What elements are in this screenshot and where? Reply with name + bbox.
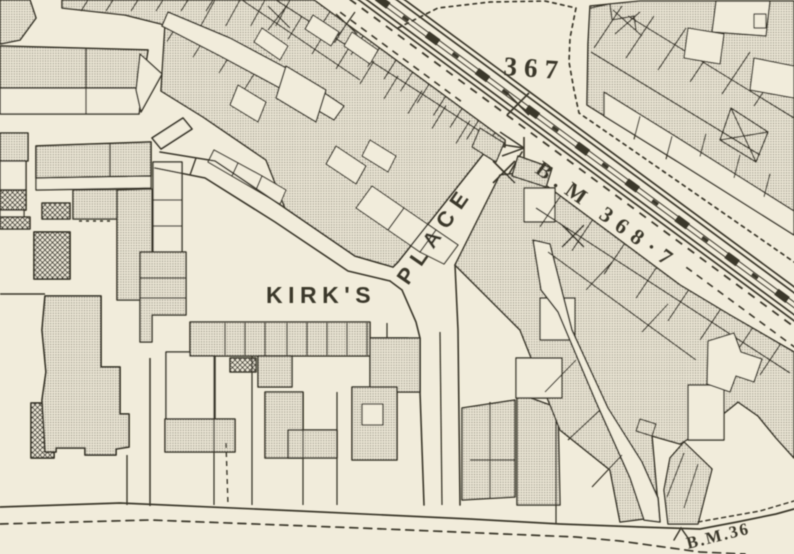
svg-text:367: 367 — [503, 51, 566, 85]
svg-text:KIRK'S: KIRK'S — [266, 282, 376, 308]
